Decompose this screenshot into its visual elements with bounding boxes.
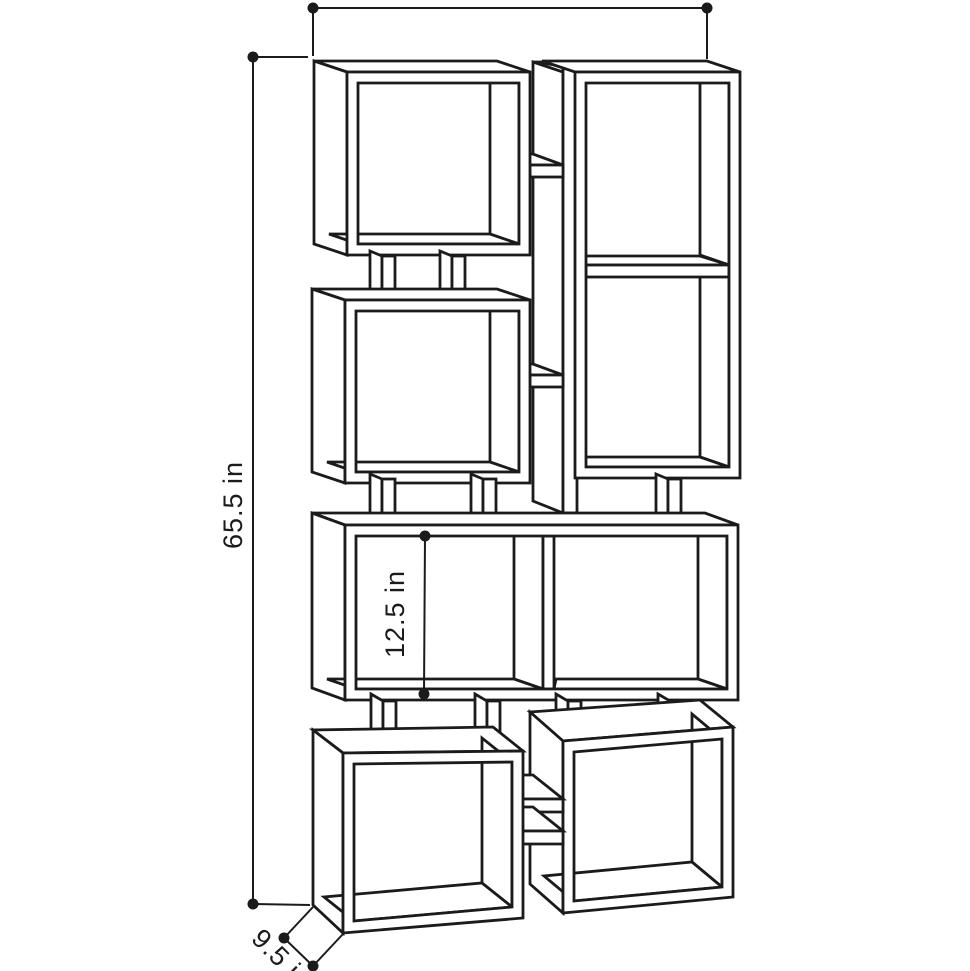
diagram-canvas: 65.5 in 12.5 in 9.5 in (0, 0, 970, 971)
bottom-left-cube (313, 727, 523, 933)
spine-panel (533, 62, 577, 513)
dimension-endpoint-dot (419, 689, 430, 700)
top-left-cube (314, 61, 530, 255)
second-left-cube (312, 289, 530, 483)
compartment-height-dimension: 12.5 in (380, 531, 431, 700)
compartment-height-dimension-label: 12.5 in (380, 570, 410, 658)
dimension-endpoint-dot (248, 899, 259, 910)
dimension-endpoint-dot (420, 531, 431, 542)
dimension-endpoint-dot (248, 52, 259, 63)
middle-double-cube (312, 513, 738, 700)
height-dimension-label: 65.5 in (218, 461, 248, 549)
center-partition-front (543, 536, 554, 689)
dimension-endpoint-dot (702, 3, 713, 14)
depth-dimension-label: 9.5 in (246, 923, 318, 971)
center-partition-side (514, 526, 543, 689)
height-dimension: 65.5 in (218, 52, 310, 910)
middle-shelf-front (586, 265, 729, 277)
dimension-endpoint-dot (308, 3, 319, 14)
bookcase-line-drawing: 65.5 in 12.5 in 9.5 in (0, 0, 970, 971)
width-dimension (308, 3, 713, 60)
